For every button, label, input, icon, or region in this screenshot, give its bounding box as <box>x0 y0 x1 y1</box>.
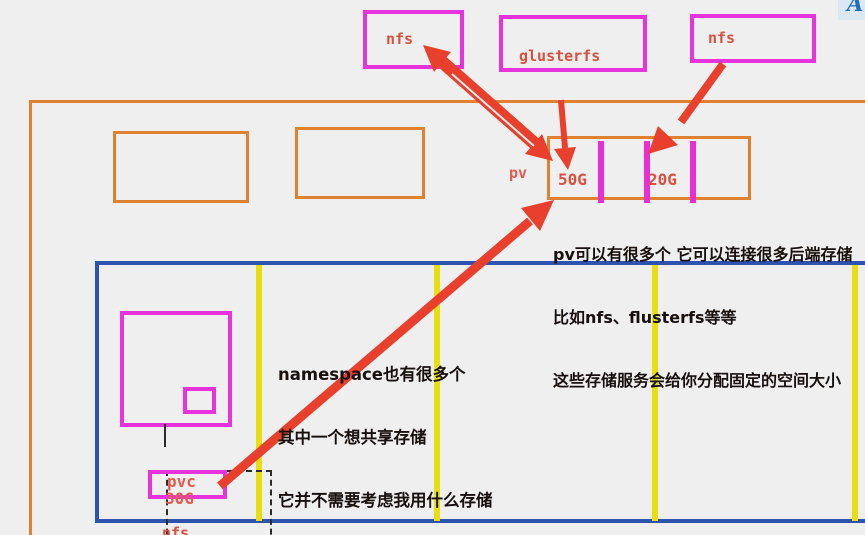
font-tool-icon: A <box>847 0 863 16</box>
pv-segment1-size: 50G <box>558 170 587 189</box>
nfs-left-label: nfs <box>386 30 413 48</box>
nfs-left-box <box>363 10 464 69</box>
glusterfs-label: glusterfs <box>519 47 600 65</box>
pv-note-line: pv可以有很多个 它可以连接很多后端存储 <box>553 244 852 265</box>
pv-segment2-size: 20G <box>648 170 677 189</box>
namespace-note-text: namespace也有很多个 其中一个想共享存储 它并不需要考虑我用什么存储 直… <box>278 322 646 535</box>
namespace-note-line: 它并不需要考虑我用什么存储 <box>278 490 646 511</box>
drawing-canvas[interactable]: pv 50G 20G nfs glusterfs nfs pvc 30G nfs <box>0 0 865 535</box>
pvc-size-label: 30G <box>165 489 194 508</box>
pv-divider-1 <box>598 141 604 203</box>
bottom-nfs-partial-label: nfs <box>162 524 189 535</box>
container-box <box>183 387 216 414</box>
node-box-1 <box>113 131 249 203</box>
nfs-right-label: nfs <box>708 29 735 47</box>
pod-connector-line <box>164 424 166 447</box>
namespace-note-line: 其中一个想共享存储 <box>278 427 646 448</box>
namespace-divider-4 <box>852 265 858 521</box>
font-tool-button[interactable]: A <box>838 0 865 20</box>
namespace-note-line: namespace也有很多个 <box>278 364 646 385</box>
pv-divider-3 <box>690 141 696 203</box>
pv-label: pv <box>509 164 527 182</box>
node-box-2 <box>295 127 425 199</box>
